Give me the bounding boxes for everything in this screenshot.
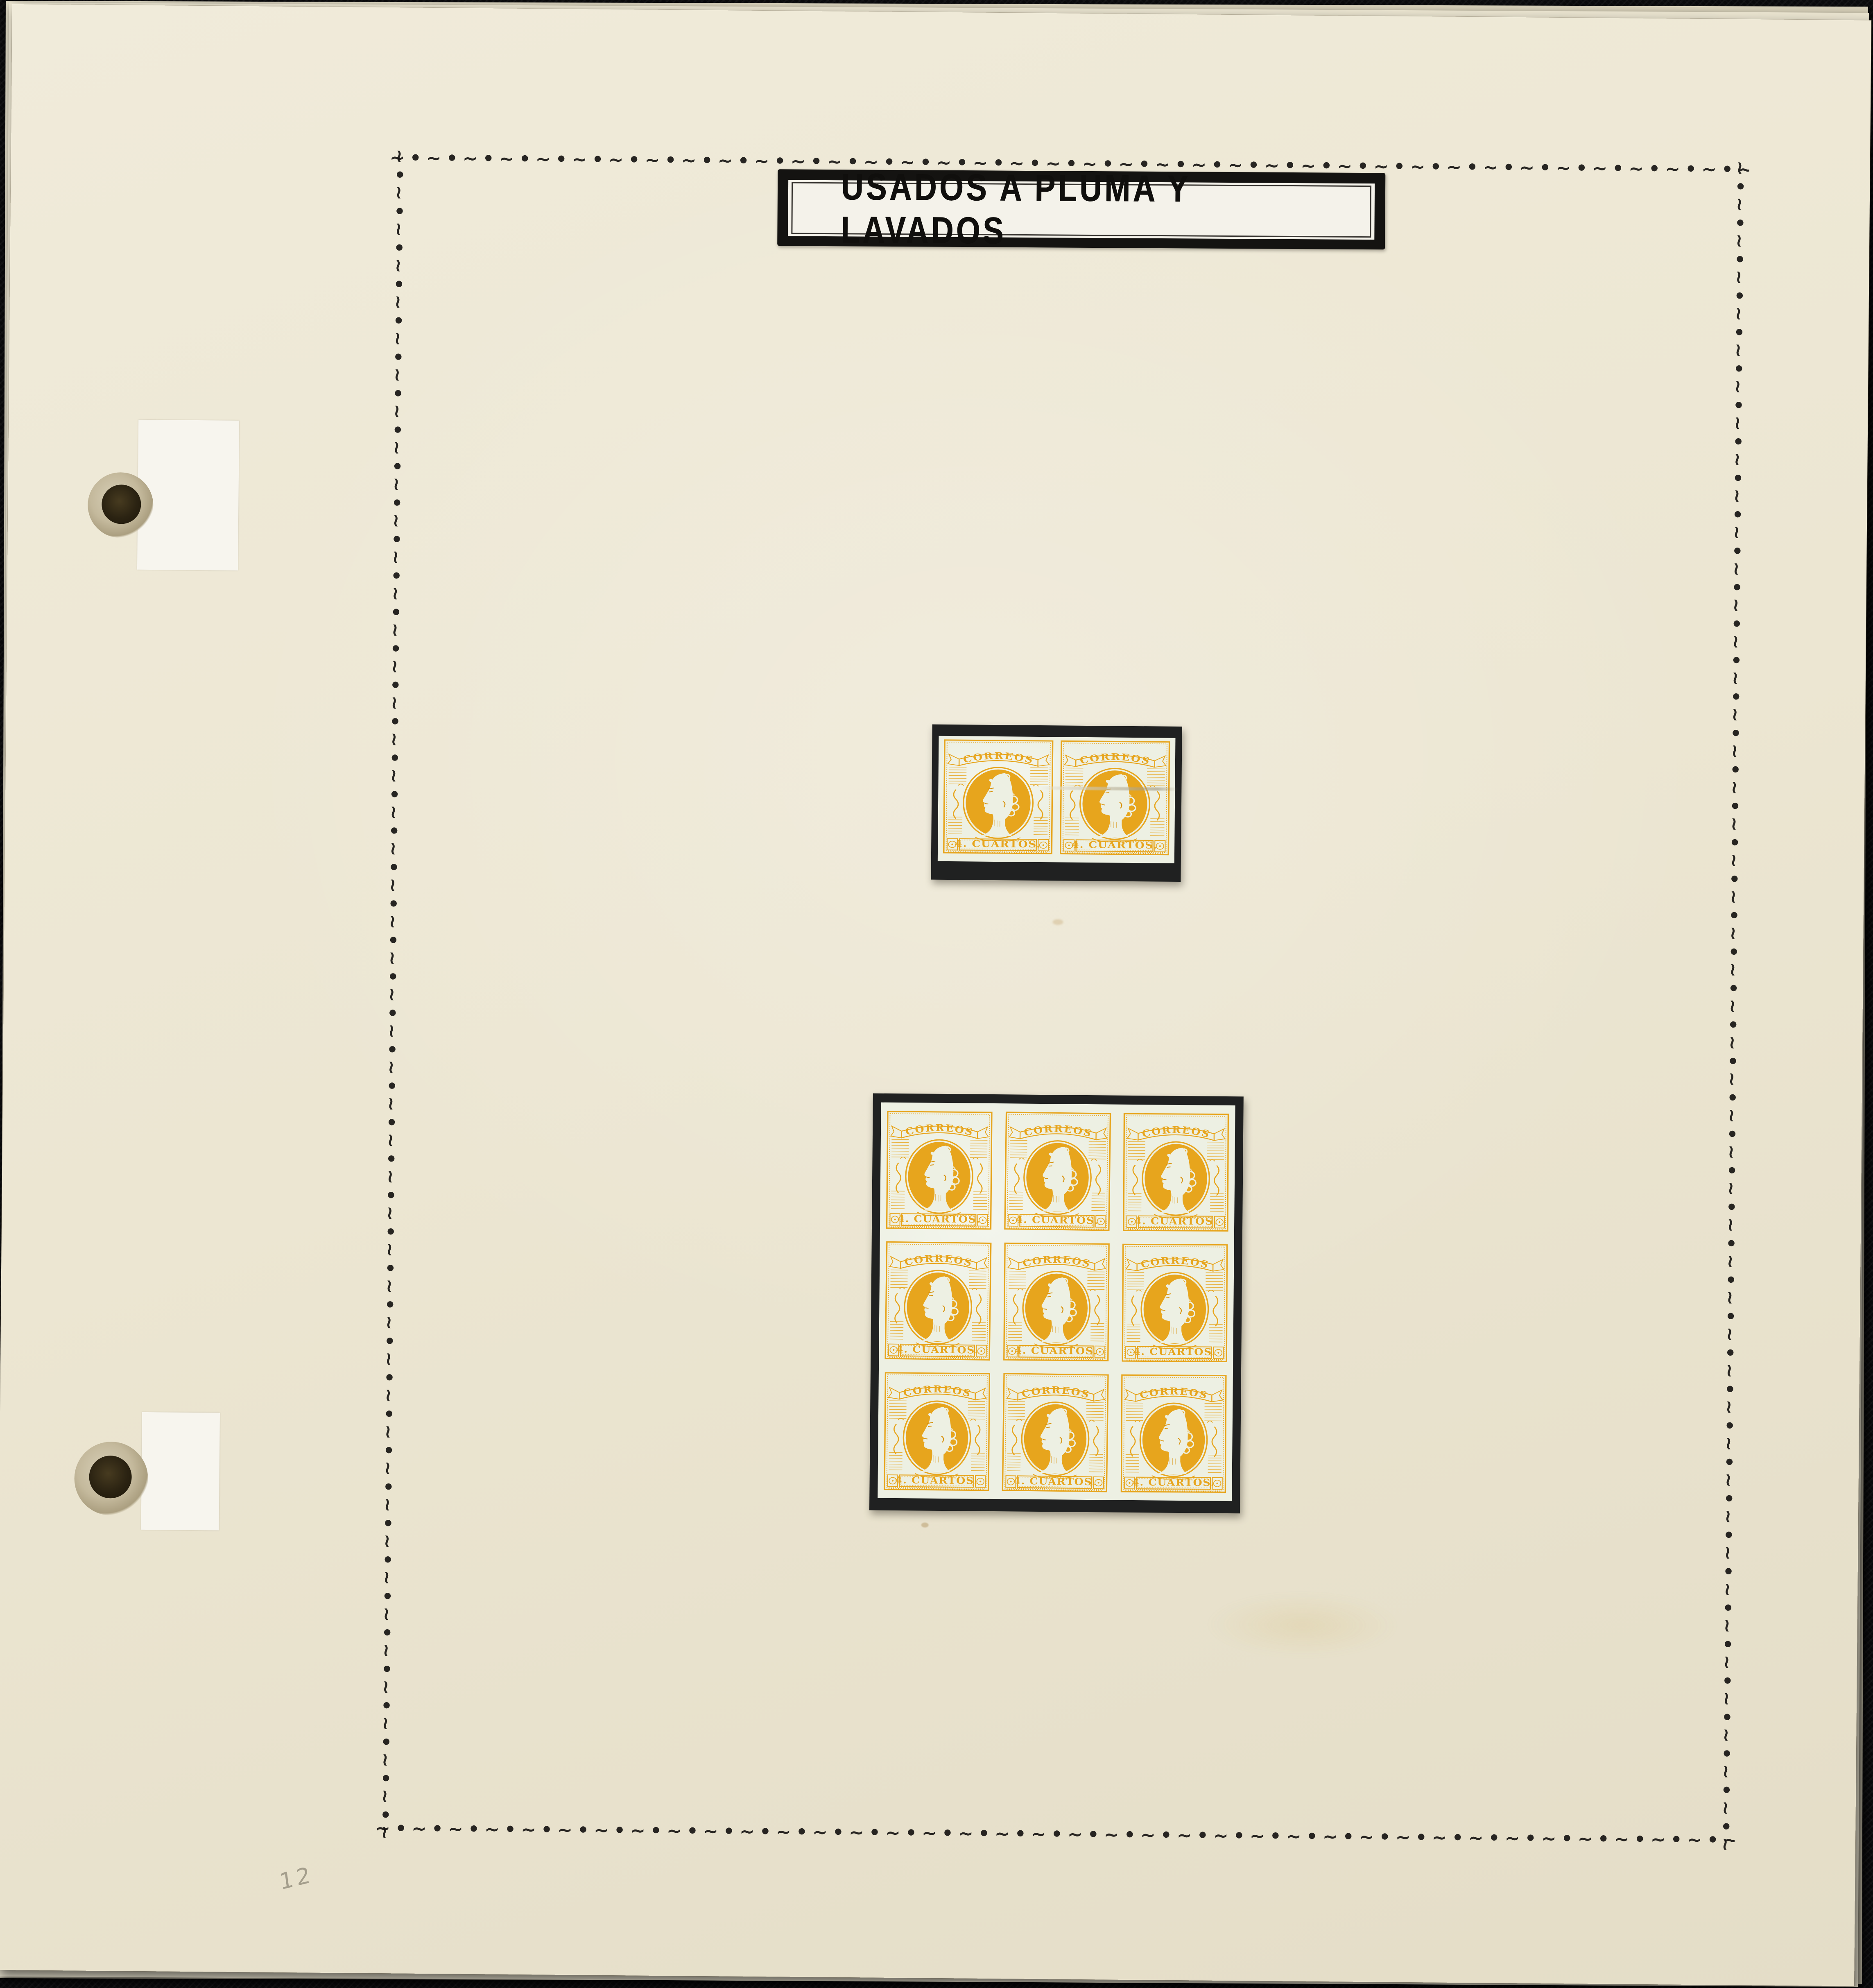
stamp-mount-block — [869, 1093, 1244, 1513]
stamp-block-1 — [884, 1109, 994, 1231]
foxing-dot-2 — [1052, 919, 1063, 925]
title-box: USADOS A PLUMA Y LAVADOS — [777, 169, 1385, 249]
stamp-mount-pair — [931, 725, 1182, 882]
page-stain — [1206, 1592, 1399, 1659]
punch-hole-top — [88, 472, 154, 538]
album-page: ∼•∼•∼•∼•∼•∼•∼•∼•∼•∼•∼•∼•∼•∼•∼•∼•∼•∼•∼•∼•… — [0, 4, 1871, 1986]
stamp-block-4 — [883, 1240, 993, 1362]
stamp-block-3 — [1121, 1112, 1231, 1233]
photo-backdrop: CORREOS — [0, 0, 1873, 1988]
stamp-pair-paper — [938, 736, 1176, 863]
ornament-border-bottom: ∼•∼•∼•∼•∼•∼•∼•∼•∼•∼•∼•∼•∼•∼•∼•∼•∼•∼•∼•∼•… — [375, 1819, 1735, 1850]
foxing-dot — [921, 1523, 929, 1528]
punch-hole-bottom-opening — [89, 1456, 132, 1499]
stamp-block-paper — [878, 1103, 1235, 1501]
ornament-border-right: ∼•∼•∼•∼•∼•∼•∼•∼•∼•∼•∼•∼•∼•∼•∼•∼•∼•∼•∼•∼•… — [1716, 161, 1749, 1850]
title-label: USADOS A PLUMA Y LAVADOS — [788, 180, 1375, 240]
stamp-pair-1 — [941, 738, 1055, 856]
stamp-block-7 — [882, 1370, 992, 1492]
stamp-block-2 — [1002, 1110, 1113, 1232]
ornament-border-left: ∼•∼•∼•∼•∼•∼•∼•∼•∼•∼•∼•∼•∼•∼•∼•∼•∼•∼•∼•∼•… — [375, 149, 409, 1838]
stamp-pair-2 — [1058, 739, 1172, 856]
stamp-block-5 — [1002, 1241, 1111, 1363]
stamp-block-6 — [1120, 1242, 1230, 1363]
punch-hole-bottom — [74, 1441, 149, 1516]
reinforcement-patch-bottom — [141, 1412, 220, 1531]
stamp-block-9 — [1119, 1373, 1228, 1494]
reinforcement-patch-top — [137, 420, 239, 571]
page-title: USADOS A PLUMA Y LAVADOS — [841, 180, 1322, 239]
punch-hole-top-opening — [102, 485, 141, 524]
pencil-page-number: 12 — [278, 1861, 314, 1895]
stamp-block-8 — [1000, 1371, 1111, 1493]
